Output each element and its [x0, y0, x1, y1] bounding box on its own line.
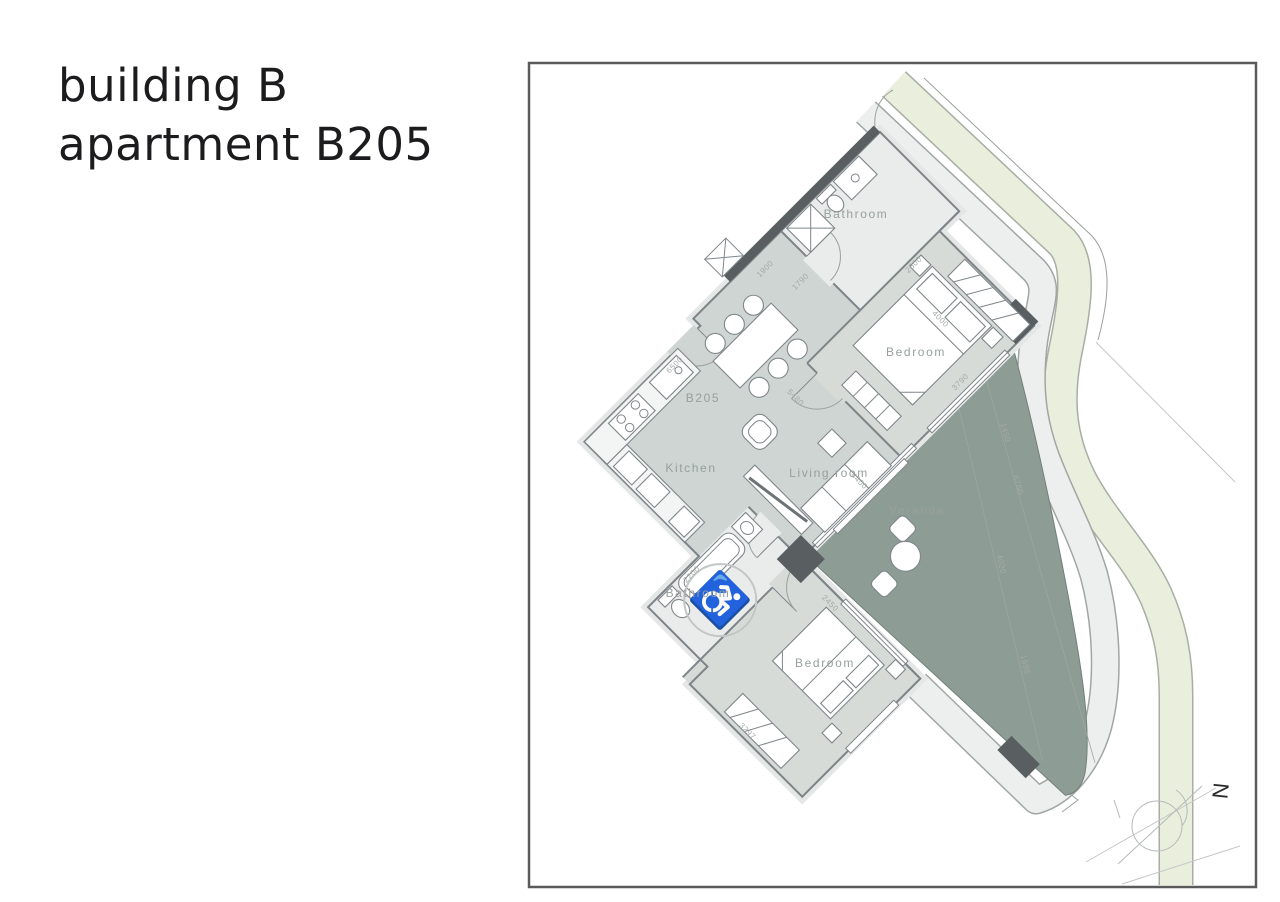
room-label-kitchen: Kitchen: [665, 461, 716, 475]
north-letter: N: [1207, 782, 1234, 800]
room-label-bathroom1: Bathroom: [824, 207, 889, 221]
room-label-bedroom2: Bedroom: [795, 656, 855, 670]
room-label-living: Living room: [789, 466, 869, 480]
room-label-bathroom2: Bathroom: [666, 586, 731, 600]
unit-number-label: B205: [686, 391, 720, 405]
room-label-bedroom1: Bedroom: [886, 345, 946, 359]
floor-plan-sheet: ♿ 1790 2500 1900 4000 3790: [0, 0, 1280, 902]
room-label-veranda: Veranda: [889, 503, 945, 517]
